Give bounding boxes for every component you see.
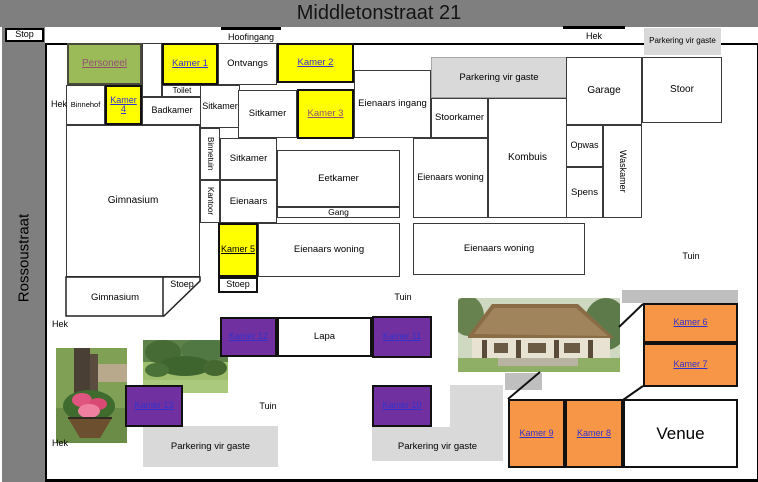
room-venue: Venue	[623, 399, 738, 468]
hek-label-left-2: Hek	[48, 318, 72, 330]
room-gang: Gang	[277, 207, 400, 218]
flower-basket-photo	[56, 348, 127, 443]
room-kamer-8[interactable]: Kamer 8	[565, 399, 623, 468]
room-kamer-12[interactable]: Kamer 12	[220, 317, 277, 357]
room-eetkamer: Eetkamer	[277, 150, 400, 207]
room-eienaars-woning-1: Eienaars woning	[413, 138, 488, 218]
rossoustraat-label: Rossoustraat	[14, 201, 34, 316]
room-kantoor: Kantoor	[200, 180, 220, 223]
room-gimnasium-1: Gimnasium	[66, 125, 200, 277]
room-ontvangs: Ontvangs	[218, 43, 277, 85]
parking-middle: Parkering vir gaste	[431, 57, 567, 98]
room-toilet: Toilet	[162, 85, 202, 97]
room-personeel[interactable]: Personeel	[67, 43, 142, 85]
room-opwas: Opwas	[566, 125, 603, 167]
driveway-patch	[505, 373, 542, 390]
room-stoorkamer: Stoorkamer	[431, 98, 488, 138]
venue-walkway-strip	[622, 290, 738, 303]
guesthouse-photo	[458, 298, 620, 372]
tuin-label-center: Tuin	[388, 291, 418, 303]
hek-top-label: Hek	[570, 29, 618, 42]
room-gimnasium-2-label: Gimnasium	[80, 290, 150, 304]
room-stoep-2: Stoep	[218, 277, 258, 293]
room-kamer-3[interactable]: Kamer 3	[297, 89, 354, 139]
room-kamer-9[interactable]: Kamer 9	[508, 399, 565, 468]
room-eienaars-woning-2: Eienaars woning	[258, 223, 400, 277]
hek-gate-bar	[563, 26, 625, 29]
hek-label-left-3: Hek	[48, 437, 72, 449]
parking-bottom-left: Parkering vir gaste	[143, 426, 278, 467]
room-sitkamer-2: Sitkamer	[238, 90, 297, 138]
room-garage: Garage	[566, 57, 642, 125]
hoofingang-label: Hoofingang	[215, 30, 287, 43]
room-stoor: Stoor	[642, 57, 722, 123]
room-kamer-7[interactable]: Kamer 7	[643, 343, 738, 387]
title-bar: Middletonstraat 21	[0, 0, 758, 27]
hek-label-left-1: Hek	[47, 98, 71, 110]
room-waskamer: Waskamer	[603, 125, 642, 218]
hoofingang-gate-bar	[221, 27, 281, 30]
parking-bottom-right-label: Parkering vir gaste	[380, 439, 495, 453]
room-kamer-10[interactable]: Kamer 10	[372, 385, 432, 427]
room-kamer-13[interactable]: Kamer 13	[125, 385, 183, 427]
room-kombuis: Kombuis	[488, 98, 567, 218]
utility-box	[142, 43, 162, 97]
parking-top-right: Parkering vir gaste	[644, 28, 721, 55]
room-badkamer: Badkamer	[142, 97, 202, 125]
room-kamer-11[interactable]: Kamer 11	[372, 316, 432, 358]
tuin-label-right: Tuin	[676, 250, 706, 262]
room-binnehof: Binnehof	[66, 85, 105, 125]
tuin-label-bottom: Tuin	[253, 400, 283, 412]
room-lapa: Lapa	[277, 317, 372, 357]
page-title: Middletonstraat 21	[297, 2, 462, 25]
room-eienaars-ingang: Eienaars ingang	[354, 70, 431, 138]
room-kamer-2[interactable]: Kamer 2	[277, 43, 354, 83]
floorplan-canvas: Middletonstraat 21 Rossoustraat Stop Hoo…	[0, 0, 758, 482]
room-kamer-1[interactable]: Kamer 1	[162, 43, 218, 85]
room-eienaars-woning-3: Eienaars woning	[413, 223, 585, 275]
room-eienaars: Eienaars	[220, 180, 277, 223]
room-binnetuin: Binnetuin	[200, 128, 220, 180]
room-sitkamer-3: Sitkamer	[220, 138, 277, 180]
room-sitkamer-1: Sitkamer	[200, 85, 240, 128]
room-kamer-6[interactable]: Kamer 6	[643, 303, 738, 343]
room-kamer-4[interactable]: Kamer 4	[105, 85, 142, 125]
room-stoep-1-label: Stoep	[166, 278, 198, 290]
room-kamer-5[interactable]: Kamer 5	[218, 223, 258, 277]
stop-sign: Stop	[5, 28, 44, 42]
room-spens: Spens	[566, 167, 603, 218]
